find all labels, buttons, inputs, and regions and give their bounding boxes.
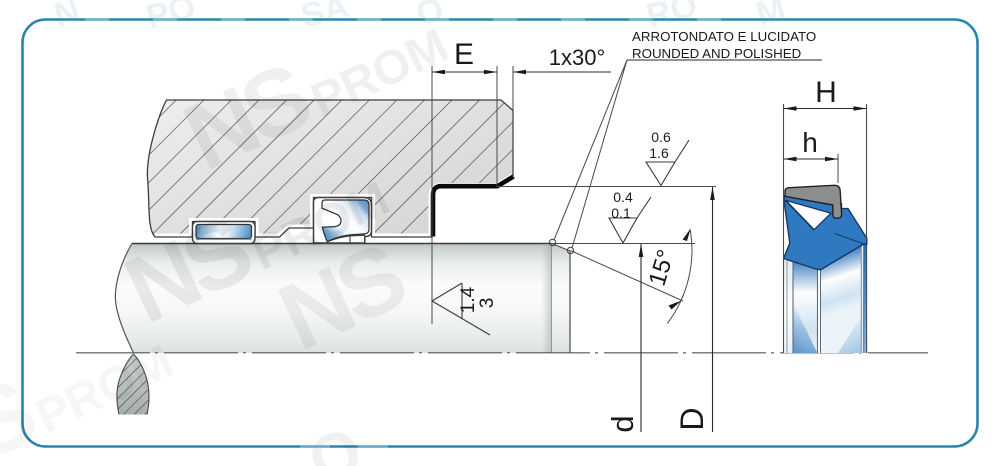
svg-text:0.1: 0.1: [611, 205, 631, 221]
svg-text:H: H: [815, 76, 837, 109]
svg-text:ROUNDED AND POLISHED: ROUNDED AND POLISHED: [632, 46, 801, 61]
svg-text:E: E: [454, 38, 474, 71]
svg-text:0.4: 0.4: [613, 189, 633, 205]
svg-text:d: d: [605, 415, 640, 432]
svg-text:D: D: [674, 407, 710, 430]
svg-text:1.6: 1.6: [649, 145, 669, 161]
svg-text:3: 3: [477, 298, 498, 309]
svg-text:1x30°: 1x30°: [549, 45, 606, 70]
svg-text:1.4: 1.4: [458, 286, 479, 313]
svg-text:h: h: [802, 127, 818, 158]
svg-text:0.6: 0.6: [651, 129, 671, 145]
